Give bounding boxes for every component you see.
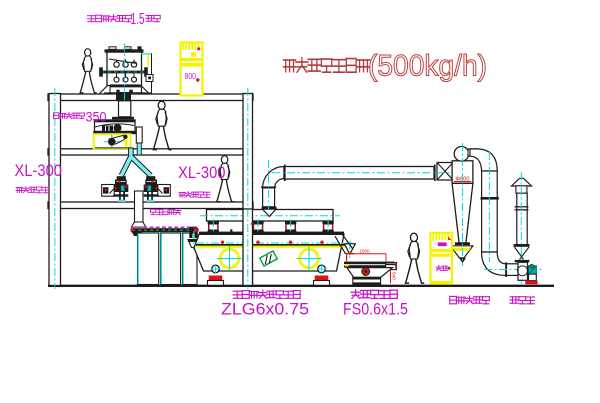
svg-text:1.5: 1.5 [131,11,145,28]
svg-text:540: 540 [392,272,397,280]
svg-text:FS0.6x1.5: FS0.6x1.5 [343,300,408,319]
svg-text:800: 800 [185,72,197,81]
svg-text:1500: 1500 [360,249,370,255]
svg-text:ZLG6x0.75: ZLG6x0.75 [221,300,309,319]
svg-text:350: 350 [86,110,107,125]
svg-text:XL-300: XL-300 [178,164,226,182]
svg-text:XL-300: XL-300 [15,162,63,180]
svg-text:(500kg/h): (500kg/h) [368,50,487,83]
